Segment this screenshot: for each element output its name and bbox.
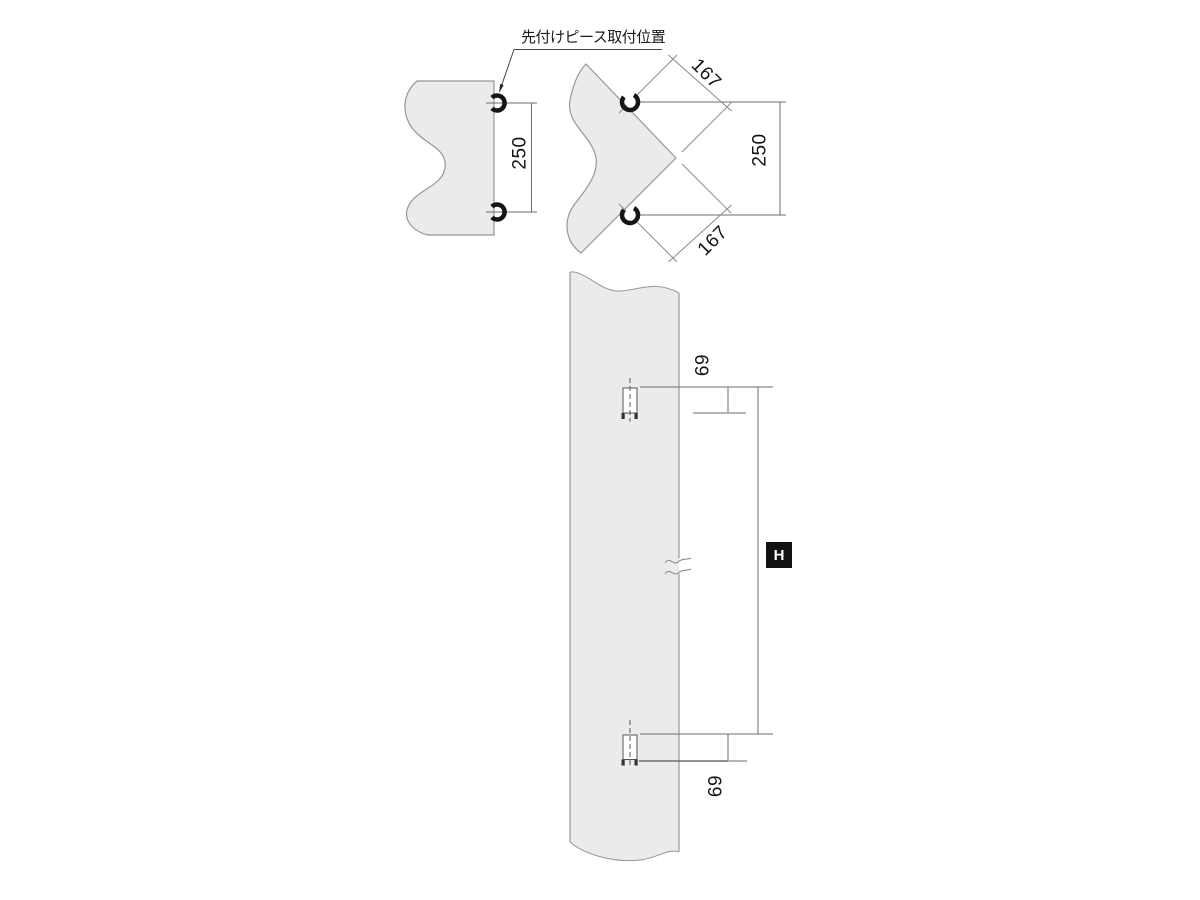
- dim-corner-pitch-250: 250: [751, 133, 770, 166]
- side-panel-shape: [405, 81, 494, 235]
- corner-panel-shape: [567, 64, 676, 253]
- dim-end-offset-top-69: 69: [694, 354, 713, 376]
- h-dimension-badge: H: [766, 542, 792, 568]
- technical-drawing-canvas: 先付けピース取付位置 250 250 167 167 69 69 H: [0, 0, 1200, 900]
- leader-arrowhead: [499, 84, 504, 93]
- door-panel-shape: [570, 272, 679, 861]
- dim-end-offset-bottom-69: 69: [707, 775, 726, 797]
- drawing-linework: [0, 0, 1200, 900]
- piece-position-callout: 先付けピース取付位置: [521, 30, 665, 45]
- dim-side-pitch-250: 250: [511, 136, 530, 169]
- mounting-point-icon: [622, 95, 638, 110]
- elevation-figure: [570, 272, 773, 861]
